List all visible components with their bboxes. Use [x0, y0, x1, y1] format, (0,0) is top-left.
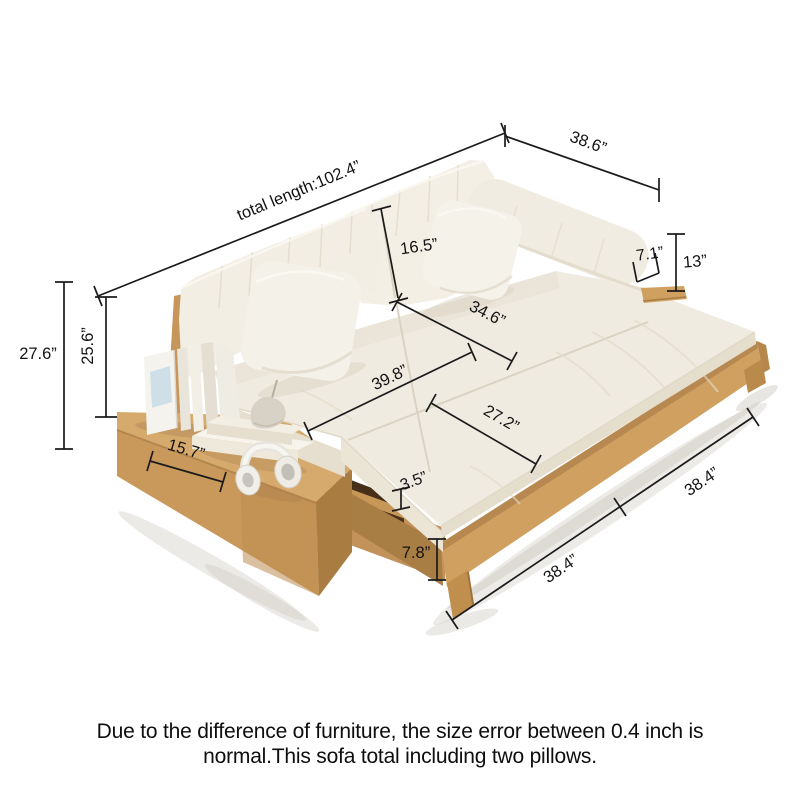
- throw-pillow-left: [238, 258, 364, 384]
- armrest-foot: [641, 286, 687, 303]
- dimension-line-back-height: [95, 297, 117, 417]
- dim-label-back-height: 25.6”: [80, 327, 97, 365]
- book-cover-art: [150, 366, 172, 408]
- dim-label-armrest-height: 13”: [682, 253, 707, 272]
- caption-line-1: Due to the difference of furniture, the …: [0, 719, 800, 744]
- dim-label-base-height: 7.8”: [402, 545, 430, 562]
- product-dimension-diagram: total length:102.4” 38.6” 16.5” 7.1” 13”…: [0, 0, 800, 800]
- dim-label-overall-height: 27.6”: [19, 346, 57, 363]
- sofa-illustration: [0, 0, 800, 800]
- caption-line-2: normal.This sofa total including two pil…: [0, 744, 800, 769]
- caption: Due to the difference of furniture, the …: [0, 719, 800, 769]
- dimension-line-overall-height: [55, 282, 73, 449]
